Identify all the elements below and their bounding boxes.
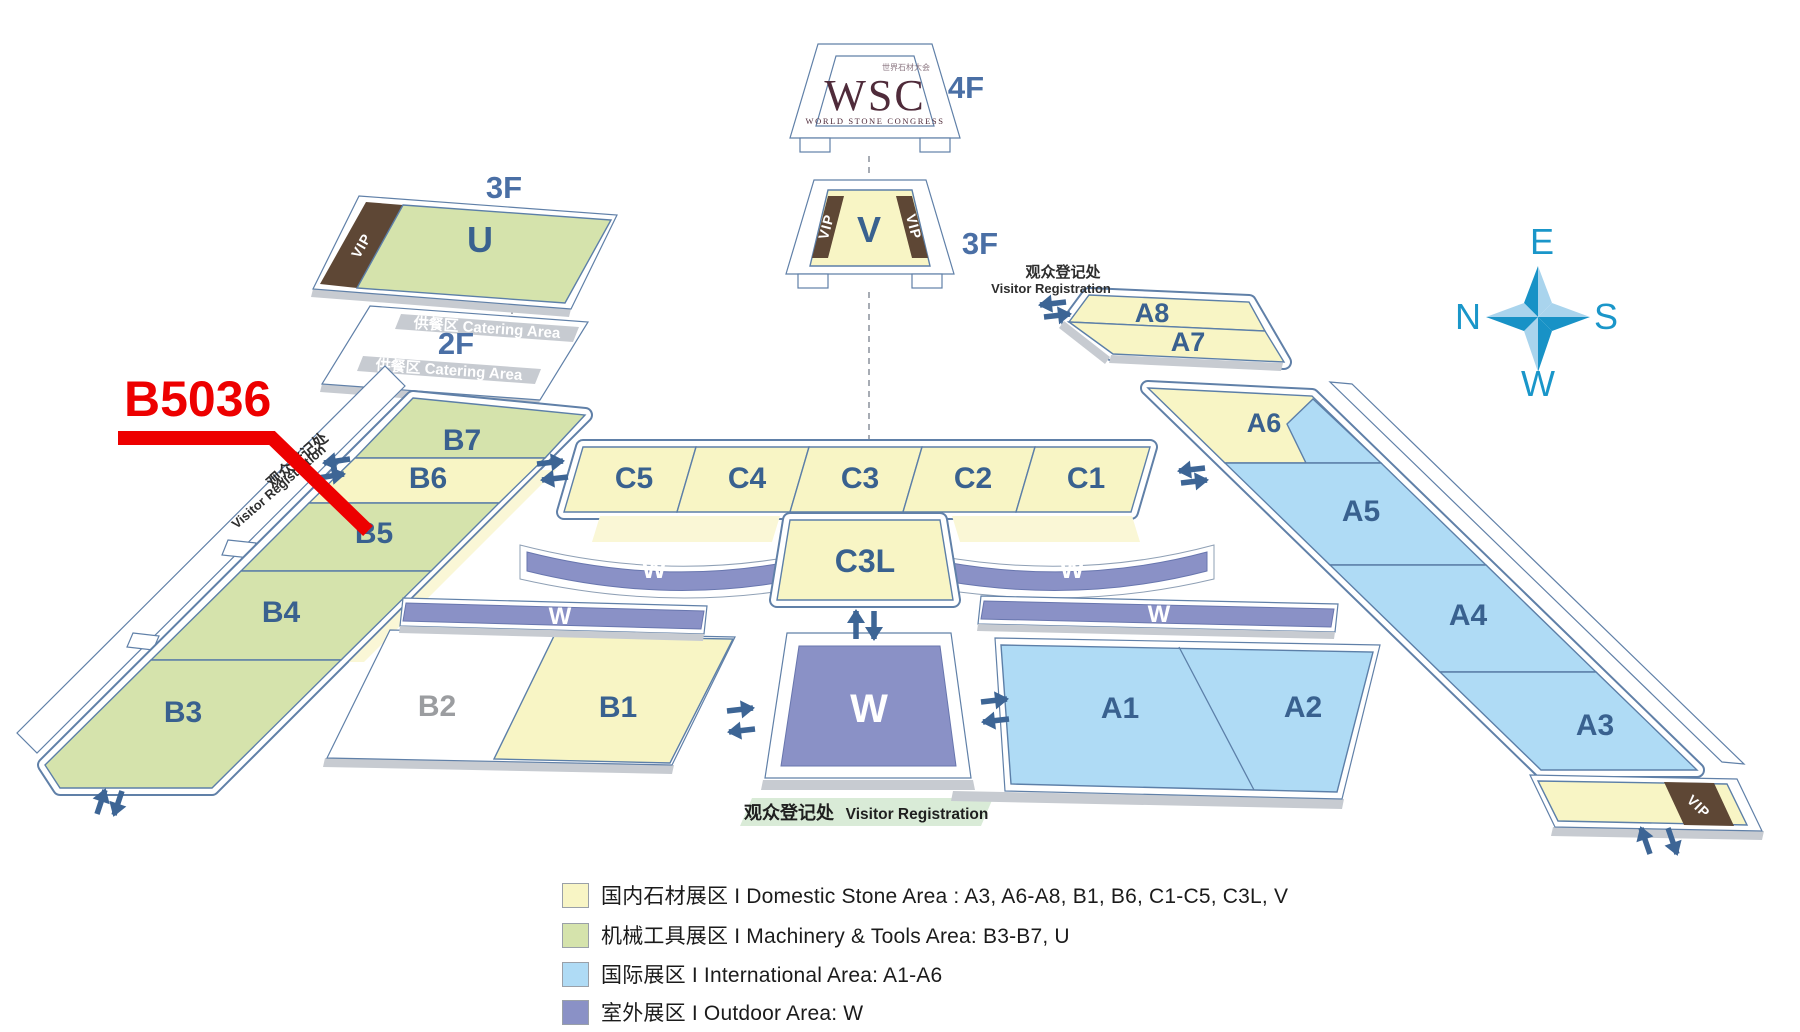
legend-item-domestic: 国内石材展区 I Domestic Stone Area : A3, A6-A8… bbox=[562, 880, 1288, 910]
legend-swatch bbox=[562, 1000, 589, 1025]
hall-label-a5: A5 bbox=[1342, 495, 1380, 528]
floor-label-3f-v: 3F bbox=[962, 226, 998, 261]
legend-label: 室外展区 I Outdoor Area: W bbox=[601, 997, 863, 1027]
hall-label-a1: A1 bbox=[1101, 692, 1139, 725]
hall-label-b6: B6 bbox=[409, 462, 447, 495]
hall-label-u: U bbox=[467, 219, 493, 260]
a-sheet: A1 A2 W bbox=[951, 596, 1380, 809]
direction-arrow bbox=[542, 477, 568, 480]
legend-swatch bbox=[562, 962, 589, 987]
legend-label: 国内石材展区 I Domestic Stone Area : A3, A6-A8… bbox=[601, 880, 1288, 910]
map-svg: 世界石材大会 WSC WORLD STONE CONGRESS 4F VIP V… bbox=[0, 0, 1800, 1032]
direction-arrow bbox=[729, 729, 755, 732]
compass-s: S bbox=[1594, 296, 1618, 337]
legend-item-machinery: 机械工具展区 I Machinery & Tools Area: B3-B7, … bbox=[562, 920, 1070, 950]
floor-map: 世界石材大会 WSC WORLD STONE CONGRESS 4F VIP V… bbox=[0, 0, 1800, 1032]
building-u-3f: VIP U 3F bbox=[311, 170, 617, 317]
legend-label: 国际展区 I International Area: A1-A6 bbox=[601, 959, 942, 989]
walkway-label-w: W bbox=[1060, 554, 1085, 584]
wsc-logo-name: WORLD STONE CONGRESS bbox=[805, 116, 944, 126]
hall-label-a7: A7 bbox=[1171, 327, 1206, 357]
hall-label-b3: B3 bbox=[164, 696, 202, 729]
a8-a7-block: A8 A7 观众登记处 Visitor Registration bbox=[991, 263, 1284, 371]
direction-arrow bbox=[1179, 468, 1205, 471]
building-v-3f: VIP VIP V 3F bbox=[786, 180, 998, 288]
floor-label-3f-u: 3F bbox=[486, 170, 522, 205]
direction-arrow bbox=[1040, 302, 1066, 305]
building-wsc-4f: 世界石材大会 WSC WORLD STONE CONGRESS 4F bbox=[790, 44, 984, 152]
direction-arrow bbox=[983, 719, 1009, 722]
hall-label-c3l: C3L bbox=[835, 543, 895, 579]
hall-label-c2: C2 bbox=[954, 462, 992, 495]
direction-arrow bbox=[1044, 314, 1070, 317]
direction-arrow bbox=[1181, 480, 1207, 483]
legend-swatch bbox=[562, 883, 589, 908]
wsc-logo: WSC bbox=[824, 71, 925, 120]
hall-label-c4: C4 bbox=[728, 462, 767, 495]
legend-item-outdoor: 室外展区 I Outdoor Area: W bbox=[562, 997, 863, 1027]
hall-label-b2: B2 bbox=[418, 690, 456, 723]
registration-zh-right: 观众登记处 bbox=[1025, 263, 1101, 281]
compass-rose: E N S W bbox=[1455, 221, 1618, 404]
legend-item-international: 国际展区 I International Area: A1-A6 bbox=[562, 959, 942, 989]
walkway-label-w: W bbox=[1148, 601, 1171, 628]
hall-label-a6: A6 bbox=[1247, 408, 1282, 438]
walkway-label-w: W bbox=[549, 603, 572, 630]
outdoor-label-w: W bbox=[850, 687, 888, 731]
hall-label-a3: A3 bbox=[1576, 709, 1614, 742]
direction-arrow bbox=[981, 699, 1007, 702]
compass-w: W bbox=[1521, 363, 1555, 404]
floor-label-2f: 2F bbox=[438, 326, 474, 361]
hall-label-c3: C3 bbox=[841, 462, 879, 495]
hall-label-v: V bbox=[857, 209, 881, 250]
hall-label-b7: B7 bbox=[443, 424, 481, 457]
vip-apron: VIP bbox=[1530, 775, 1764, 840]
booth-annotation-label: B5036 bbox=[124, 371, 271, 427]
registration-en-bottom: Visitor Registration bbox=[846, 806, 989, 823]
hall-label-a4: A4 bbox=[1449, 599, 1488, 632]
floor-label-4f: 4F bbox=[948, 70, 984, 105]
direction-arrow bbox=[727, 708, 753, 711]
registration-en-right: Visitor Registration bbox=[991, 281, 1111, 296]
compass-n: N bbox=[1455, 296, 1481, 337]
hall-label-c1: C1 bbox=[1067, 462, 1105, 495]
hall-label-b1: B1 bbox=[599, 691, 637, 724]
legend-label: 机械工具展区 I Machinery & Tools Area: B3-B7, … bbox=[601, 920, 1070, 950]
compass-e: E bbox=[1530, 221, 1554, 262]
walkway-label-w: W bbox=[642, 554, 667, 584]
hall-label-a2: A2 bbox=[1284, 691, 1322, 724]
hall-label-c5: C5 bbox=[615, 462, 653, 495]
c-row: C5 C4 C3 C2 C1 bbox=[564, 447, 1150, 512]
direction-arrow bbox=[537, 461, 563, 464]
legend-swatch bbox=[562, 923, 589, 948]
hall-label-a8: A8 bbox=[1135, 298, 1170, 328]
registration-zh-bottom: 观众登记处 bbox=[744, 802, 835, 823]
hall-label-b4: B4 bbox=[262, 596, 301, 629]
